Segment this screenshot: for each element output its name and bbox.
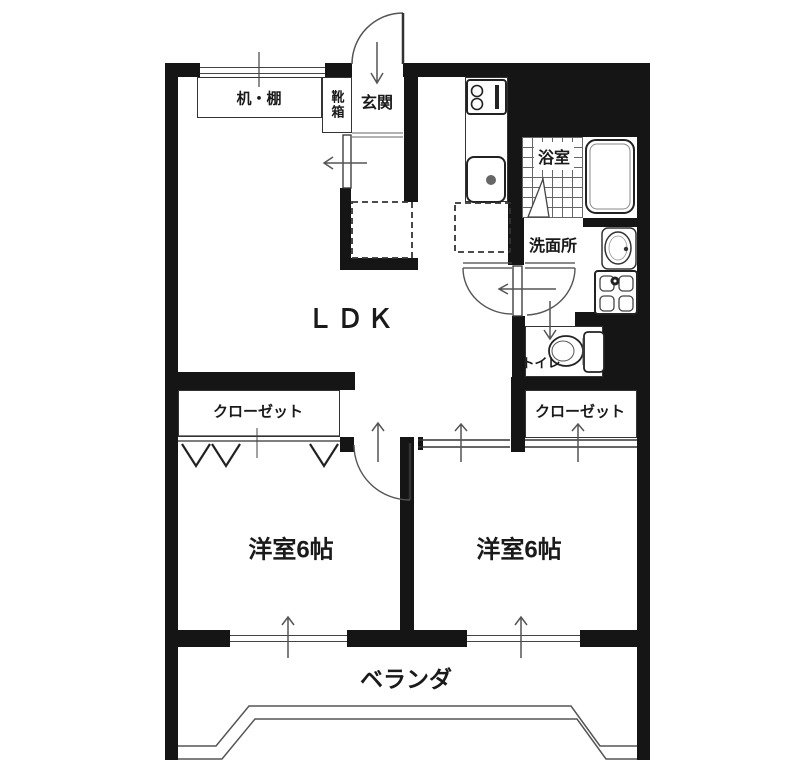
- bedroom-left-door-arc: [354, 445, 410, 500]
- washroom-door-east-leaf: [525, 263, 575, 268]
- pan-drain-hole: [614, 280, 617, 283]
- stove: [467, 80, 506, 114]
- folding-door-v1: [182, 444, 210, 466]
- entrance-step-lines: [352, 133, 403, 137]
- window-br-arrow: [515, 617, 527, 658]
- toilet-tank: [584, 332, 604, 372]
- sink-drain: [486, 175, 496, 185]
- label-shoe-box: 靴箱: [328, 90, 347, 120]
- sliding-track-closet-right: [525, 440, 637, 447]
- washroom-door-east-arc: [527, 268, 575, 315]
- veranda-railing-inner: [178, 706, 637, 746]
- bath-folding-door: [528, 179, 549, 217]
- sliding-track-bedroom-right: [418, 440, 510, 447]
- folding-door-v3: [310, 444, 338, 466]
- bedroom-left-door-arrow: [372, 423, 384, 462]
- folding-door-v2: [212, 444, 240, 466]
- label-toilet: トイレ: [521, 353, 560, 372]
- label-bathroom: 浴室: [534, 142, 574, 170]
- entry-arrow: [371, 42, 383, 83]
- sliding-arrow-1: [455, 424, 467, 462]
- window-bl-arrow: [282, 617, 294, 658]
- label-closet-right: クローゼット: [535, 401, 625, 422]
- label-veranda: ベランダ: [360, 660, 452, 694]
- bathtub: [586, 140, 634, 213]
- label-desk-shelf: 机・棚: [236, 88, 281, 109]
- closet-left-front-line: [178, 436, 340, 441]
- label-entrance: 玄関: [361, 89, 393, 113]
- label-bedroom-left: 洋室6帖: [248, 530, 333, 565]
- washroom-door-leaf-closed: [513, 266, 522, 316]
- basin-faucet: [624, 247, 628, 251]
- veranda-railing-outer: [178, 719, 637, 759]
- washroom-arrow: [499, 284, 556, 294]
- label-ldk: ＬＤＫ: [307, 299, 397, 336]
- dashed-space-left: [352, 202, 412, 258]
- floorplan-canvas: 机・棚 靴箱 玄関 浴室 洗面所 トイレ ＬＤＫ クローゼット クローゼット 洋…: [0, 0, 800, 780]
- label-bedroom-right: 洋室6帖: [476, 530, 561, 565]
- kitchen-sink: [467, 157, 505, 202]
- washroom-door-west-leaf: [463, 263, 512, 268]
- sliding-arrow-2: [572, 424, 584, 462]
- washroom-door-west-arc: [463, 268, 512, 314]
- label-washroom: 洗面所: [529, 232, 577, 256]
- dashed-space-refrigerator: [455, 203, 510, 252]
- stove-grill: [495, 85, 499, 109]
- label-closet-left: クローゼット: [213, 401, 303, 422]
- hall-sliding-door: [343, 135, 351, 188]
